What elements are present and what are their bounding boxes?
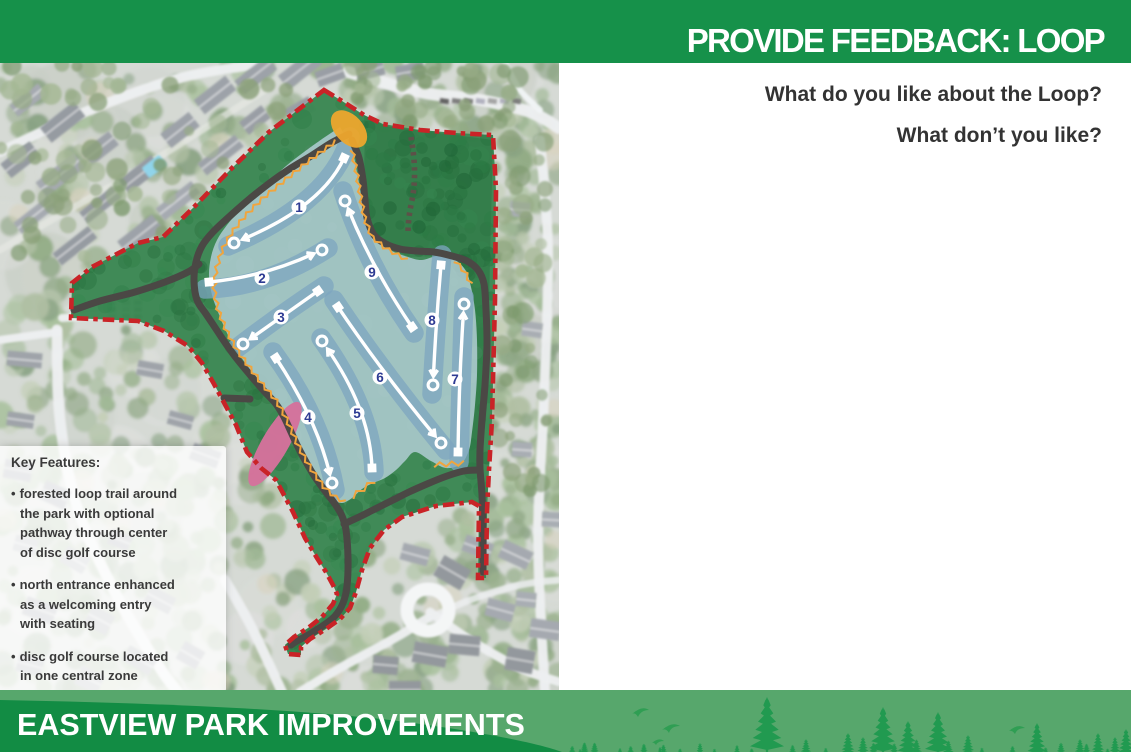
svg-text:4: 4 [304,410,312,425]
svg-text:1: 1 [295,200,303,215]
svg-text:6: 6 [376,370,384,385]
svg-text:9: 9 [368,265,376,280]
svg-text:2: 2 [258,271,266,286]
svg-text:3: 3 [277,310,285,325]
svg-text:7: 7 [451,372,459,387]
svg-text:8: 8 [428,313,436,328]
svg-text:5: 5 [353,406,361,421]
